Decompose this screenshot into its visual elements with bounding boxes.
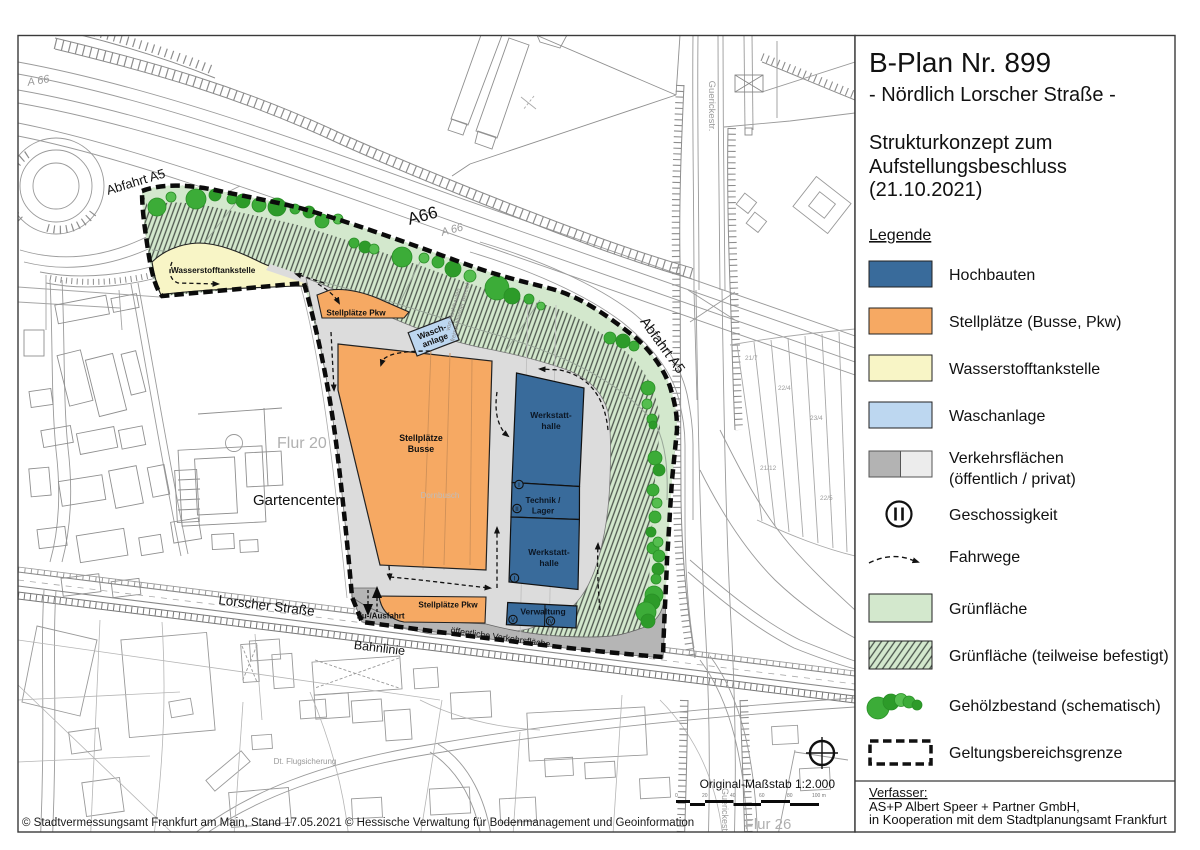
svg-text:Stellplätze: Stellplätze xyxy=(399,433,443,443)
svg-text:Lager: Lager xyxy=(532,507,555,516)
svg-text:60: 60 xyxy=(759,793,765,799)
svg-text:Hochbauten: Hochbauten xyxy=(949,267,1035,284)
svg-text:(21.10.2021): (21.10.2021) xyxy=(869,179,982,201)
svg-text:(öffentlich / privat): (öffentlich / privat) xyxy=(949,471,1076,488)
svg-text:Verfasser:: Verfasser: xyxy=(869,785,928,800)
svg-text:Wasserstofftankstelle: Wasserstofftankstelle xyxy=(949,361,1100,378)
svg-text:Guerickestr.: Guerickestr. xyxy=(720,788,730,836)
svg-text:Flur 20: Flur 20 xyxy=(277,435,327,452)
svg-text:I: I xyxy=(514,576,516,583)
svg-text:Busse: Busse xyxy=(408,444,435,454)
svg-text:Werkstatt-: Werkstatt- xyxy=(528,547,570,557)
svg-text:Dornbusch: Dornbusch xyxy=(421,491,460,500)
svg-text:halle: halle xyxy=(539,558,559,568)
svg-text:Strukturkonzept zum: Strukturkonzept zum xyxy=(869,132,1052,154)
svg-text:halle: halle xyxy=(541,421,561,431)
svg-text:Stellplätze Pkw: Stellplätze Pkw xyxy=(326,309,386,318)
svg-text:Grünfläche (teilweise befestig: Grünfläche (teilweise befestigt) xyxy=(949,648,1169,665)
svg-text:Verwaltung: Verwaltung xyxy=(520,607,565,617)
svg-text:Dt. Flugsicherung: Dt. Flugsicherung xyxy=(274,757,337,766)
svg-text:© Stadtvermessungsamt Frankfur: © Stadtvermessungsamt Frankfurt am Main,… xyxy=(22,817,694,829)
svg-text:Geltungsbereichsgrenze: Geltungsbereichsgrenze xyxy=(949,745,1123,762)
svg-text:Verkehrsflächen: Verkehrsflächen xyxy=(949,450,1064,467)
svg-text:Geschossigkeit: Geschossigkeit xyxy=(949,507,1058,524)
svg-text:Waschanlage: Waschanlage xyxy=(949,408,1045,425)
svg-text:I: I xyxy=(518,482,520,489)
svg-text:80: 80 xyxy=(787,793,793,799)
svg-text:0: 0 xyxy=(675,793,678,799)
svg-text:B-Plan Nr. 899: B-Plan Nr. 899 xyxy=(869,47,1051,78)
svg-text:Zu-/Ausfahrt: Zu-/Ausfahrt xyxy=(357,612,405,621)
svg-text:- Nördlich Lorscher Straße -: - Nördlich Lorscher Straße - xyxy=(869,84,1116,106)
svg-text:20: 20 xyxy=(702,793,708,799)
svg-text:II: II xyxy=(515,506,519,513)
svg-text:Fahrwege: Fahrwege xyxy=(949,549,1020,566)
svg-text:23/4: 23/4 xyxy=(810,415,823,422)
svg-text:Werkstatt-: Werkstatt- xyxy=(530,410,572,420)
svg-text:21/12: 21/12 xyxy=(760,465,777,472)
svg-text:40: 40 xyxy=(730,793,736,799)
svg-text:Stellplätze (Busse, Pkw): Stellplätze (Busse, Pkw) xyxy=(949,314,1122,331)
svg-text:22/5: 22/5 xyxy=(820,495,833,502)
svg-text:Wasserstofftankstelle: Wasserstofftankstelle xyxy=(171,266,256,275)
svg-text:Legende: Legende xyxy=(869,227,931,244)
svg-text:Flur 26: Flur 26 xyxy=(745,816,792,833)
svg-text:Aufstellungsbeschluss: Aufstellungsbeschluss xyxy=(869,156,1067,178)
svg-text:in Kooperation mit dem Stadtpl: in Kooperation mit dem Stadtplanungsamt … xyxy=(869,812,1167,827)
svg-text:Technik /: Technik / xyxy=(526,496,562,505)
svg-text:Grünfläche: Grünfläche xyxy=(949,601,1027,618)
svg-text:Stellplätze Pkw: Stellplätze Pkw xyxy=(418,601,478,610)
svg-text:Guerickestr.: Guerickestr. xyxy=(706,81,717,132)
svg-text:Gehölzbestand (schematisch): Gehölzbestand (schematisch) xyxy=(949,698,1161,715)
svg-text:100 m: 100 m xyxy=(812,793,826,799)
svg-text:IV: IV xyxy=(548,619,555,626)
svg-text:22/4: 22/4 xyxy=(778,385,791,392)
svg-text:Original-Maßstab 1:2.000: Original-Maßstab 1:2.000 xyxy=(700,777,836,791)
svg-text:21/7: 21/7 xyxy=(745,355,758,362)
svg-text:Gartencenter: Gartencenter xyxy=(253,492,341,509)
